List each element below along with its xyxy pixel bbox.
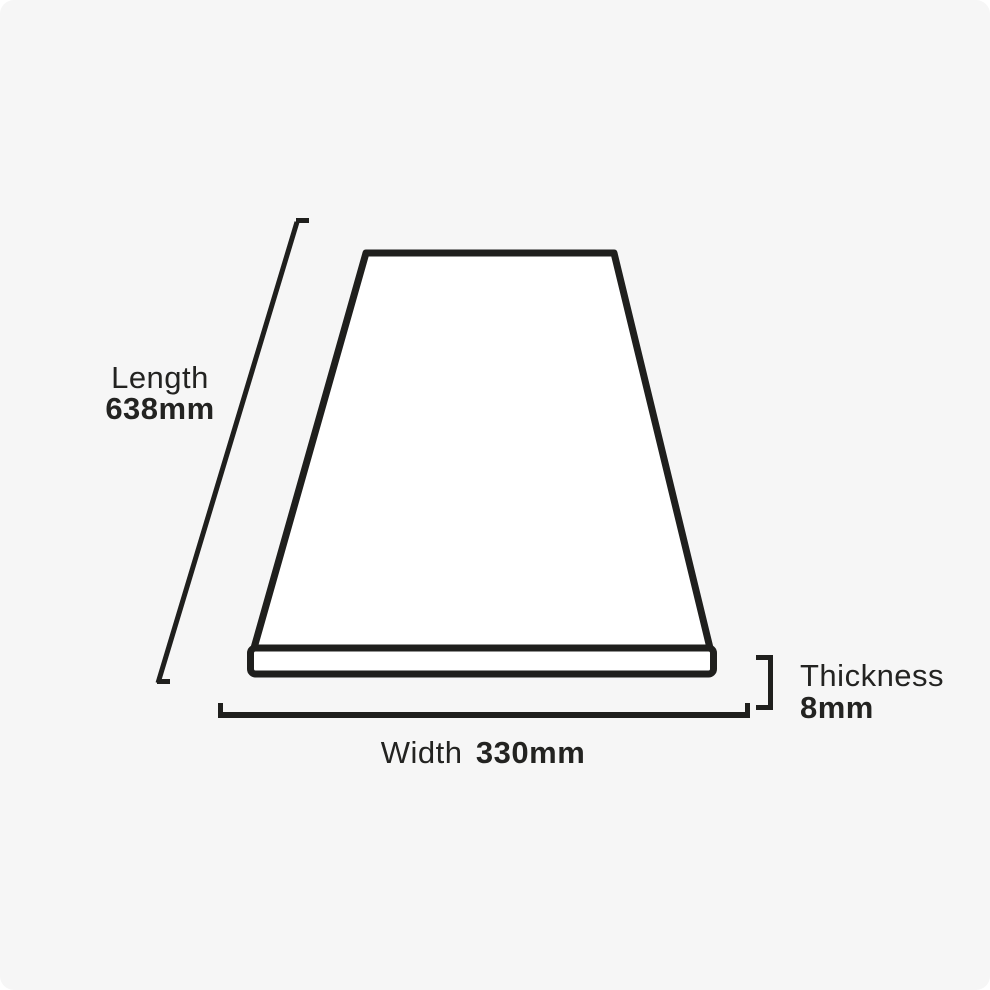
length-label: Length bbox=[111, 360, 209, 395]
width-label: Width bbox=[381, 735, 463, 770]
length-value: 638mm bbox=[105, 391, 214, 426]
thickness-value: 8mm bbox=[800, 690, 874, 725]
plank-illustration bbox=[251, 253, 714, 674]
diagram-canvas: Length 638mm Width 330mm Thickness 8mm bbox=[0, 0, 990, 990]
plank-top-face bbox=[254, 253, 710, 648]
plank-dimensions-svg: Length 638mm Width 330mm Thickness 8mm bbox=[0, 0, 990, 990]
plank-edge-face bbox=[251, 648, 714, 674]
thickness-dimension: Thickness 8mm bbox=[756, 658, 944, 726]
thickness-bracket bbox=[756, 658, 771, 708]
width-caption: Width 330mm bbox=[381, 735, 586, 770]
thickness-label: Thickness bbox=[800, 658, 944, 693]
width-value: 330mm bbox=[476, 735, 585, 770]
width-dimension: Width 330mm bbox=[218, 703, 750, 770]
